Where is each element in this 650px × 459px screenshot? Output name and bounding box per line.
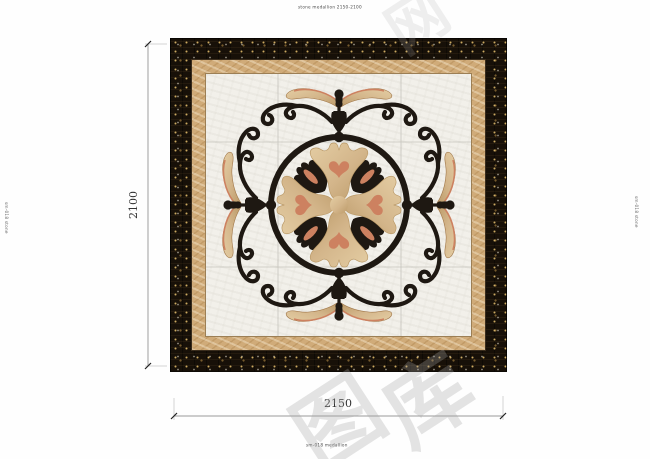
drawing-canvas: 2100 2150 stone medallion 2150-2100 sm-0… xyxy=(0,0,650,459)
top-caption: stone medallion 2150-2100 xyxy=(298,5,362,10)
width-dimension xyxy=(171,396,506,420)
right-edge-caption: sm-018 stone xyxy=(634,196,639,228)
height-dimension-label: 2100 xyxy=(127,191,140,219)
medallion-ornament xyxy=(170,38,507,372)
left-edge-caption: sm-018 stone xyxy=(4,202,9,234)
medallion-tile xyxy=(170,38,507,372)
width-dimension-label: 2150 xyxy=(324,397,352,410)
medallion-center-group xyxy=(223,89,456,322)
height-dimension xyxy=(145,41,167,369)
bottom-caption: sm-018 medallion xyxy=(306,443,348,448)
